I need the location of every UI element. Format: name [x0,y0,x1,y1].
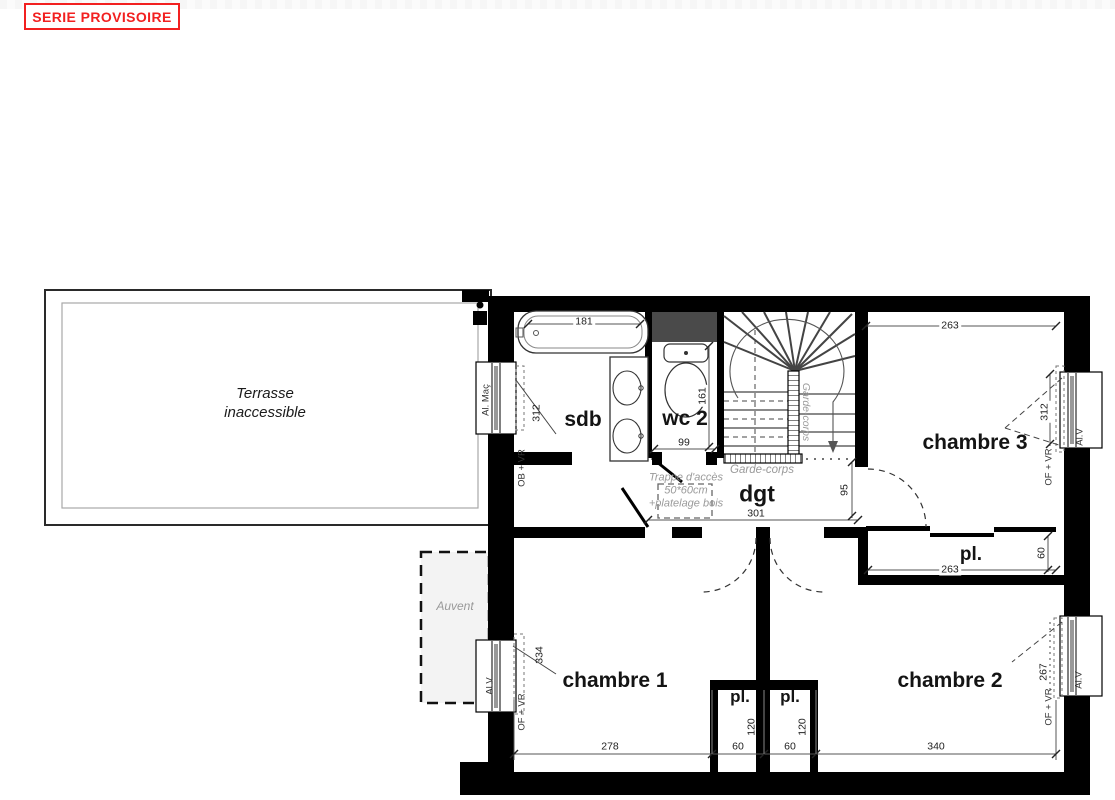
dim-pl-bottom-right-depth: 120 [798,716,809,738]
room-label-dgt: dgt [739,481,775,508]
room-label-chambre1: chambre 1 [562,669,667,693]
dim-ch1-width: 278 [599,742,621,753]
dim-window-ch2: 267 [1039,661,1050,683]
provisional-stamp: SERIE PROVISOIRE [24,3,180,30]
dim-dgt-depth: 95 [840,482,851,498]
room-label-chambre3: chambre 3 [922,431,1027,455]
dim-pl-bottom-left-width: 60 [730,742,746,753]
window-label-ch2-outside: Al.V [1074,671,1085,688]
room-label-wc2: wc 2 [662,407,708,431]
floor-plan-canvas: SERIE PROVISOIRE Terrasse inaccessible s… [0,0,1115,800]
dim-pl-bottom-right-width: 60 [782,742,798,753]
room-label-pl-bottom-right: pl. [780,687,800,707]
dim-window-ch3: 312 [1040,401,1051,423]
staircase [724,312,855,463]
room-label-chambre2: chambre 2 [897,669,1002,693]
garde-corps-vertical-label: Garde-corps [800,383,812,441]
dim-wc-depth: 161 [698,385,709,407]
dim-dgt-width: 301 [745,509,767,520]
room-label-pl-right: pl. [960,544,982,566]
window-label-sdb-outside: Al. Maç [481,384,492,416]
dim-wc-width: 99 [676,438,692,449]
duct-block [652,312,717,342]
dim-tub-width: 181 [573,317,595,328]
window-chambre2 [1012,616,1102,698]
provisional-stamp-text: SERIE PROVISOIRE [32,9,171,25]
window-label-sdb-inside: OB + VR [517,449,528,487]
window-label-ch3-outside: Al.V [1075,428,1086,445]
garde-corps-label: Garde-corps [730,464,794,476]
dim-ch2-width: 340 [925,742,947,753]
dim-pl-depth: 60 [1037,545,1048,561]
room-label-auvent: Auvent [436,599,473,613]
window-label-ch1-outside: Al.V [485,677,496,694]
person-icon [473,302,487,326]
vanity-double-sink [610,357,648,461]
trappe-annotation: Trappe d'accès 50*60cm +platelage bois [649,472,723,511]
room-label-pl-bottom-left: pl. [730,687,750,707]
dim-window-ch1: 334 [535,644,546,666]
window-label-ch1-inside: OF + VR [517,693,528,730]
room-label-sdb: sdb [564,408,601,432]
window-label-ch2-inside: OF + VR [1044,688,1055,725]
walls [460,290,1090,795]
window-label-ch3-inside: OF + VR [1044,448,1055,485]
room-label-terrasse: Terrasse inaccessible [224,384,306,422]
dim-window-sdb: 312 [532,402,543,424]
dim-pl-width: 263 [939,565,961,576]
dim-ch3-top: 263 [939,321,961,332]
dim-pl-bottom-left-depth: 120 [747,716,758,738]
